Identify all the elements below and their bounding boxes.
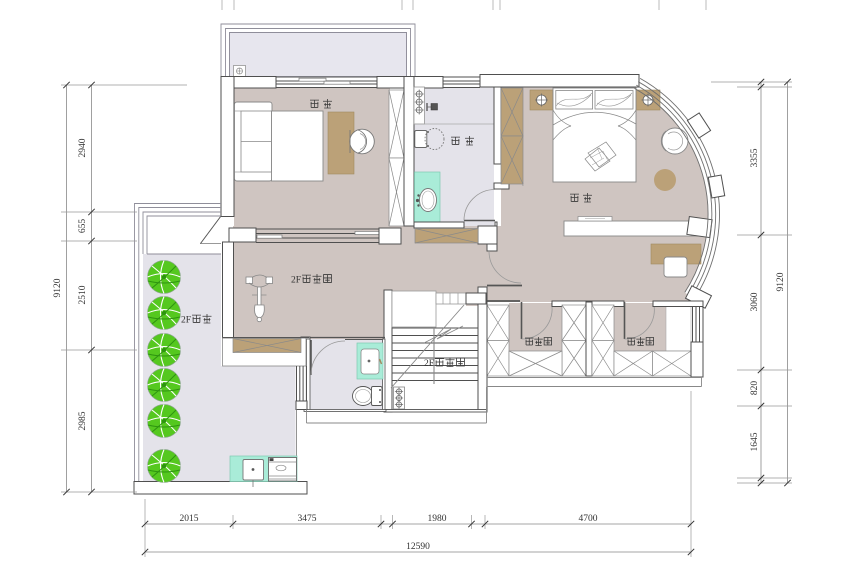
svg-text:2F: 2F [424, 359, 434, 369]
svg-text:3060: 3060 [750, 292, 760, 311]
svg-text:2F: 2F [181, 316, 191, 326]
svg-text:9120: 9120 [53, 278, 63, 297]
svg-text:3475: 3475 [298, 514, 317, 524]
svg-text:2985: 2985 [78, 411, 88, 430]
svg-text:3355: 3355 [750, 148, 760, 167]
svg-text:2940: 2940 [78, 138, 88, 157]
svg-text:4700: 4700 [579, 514, 598, 524]
svg-text:2015: 2015 [180, 514, 199, 524]
svg-text:12590: 12590 [406, 542, 430, 552]
svg-text:9120: 9120 [776, 272, 786, 291]
svg-text:1645: 1645 [750, 432, 760, 451]
svg-text:2510: 2510 [78, 285, 88, 304]
svg-text:2F: 2F [291, 276, 301, 286]
svg-text:655: 655 [78, 219, 88, 234]
svg-text:1980: 1980 [428, 514, 447, 524]
svg-text:820: 820 [750, 381, 760, 396]
